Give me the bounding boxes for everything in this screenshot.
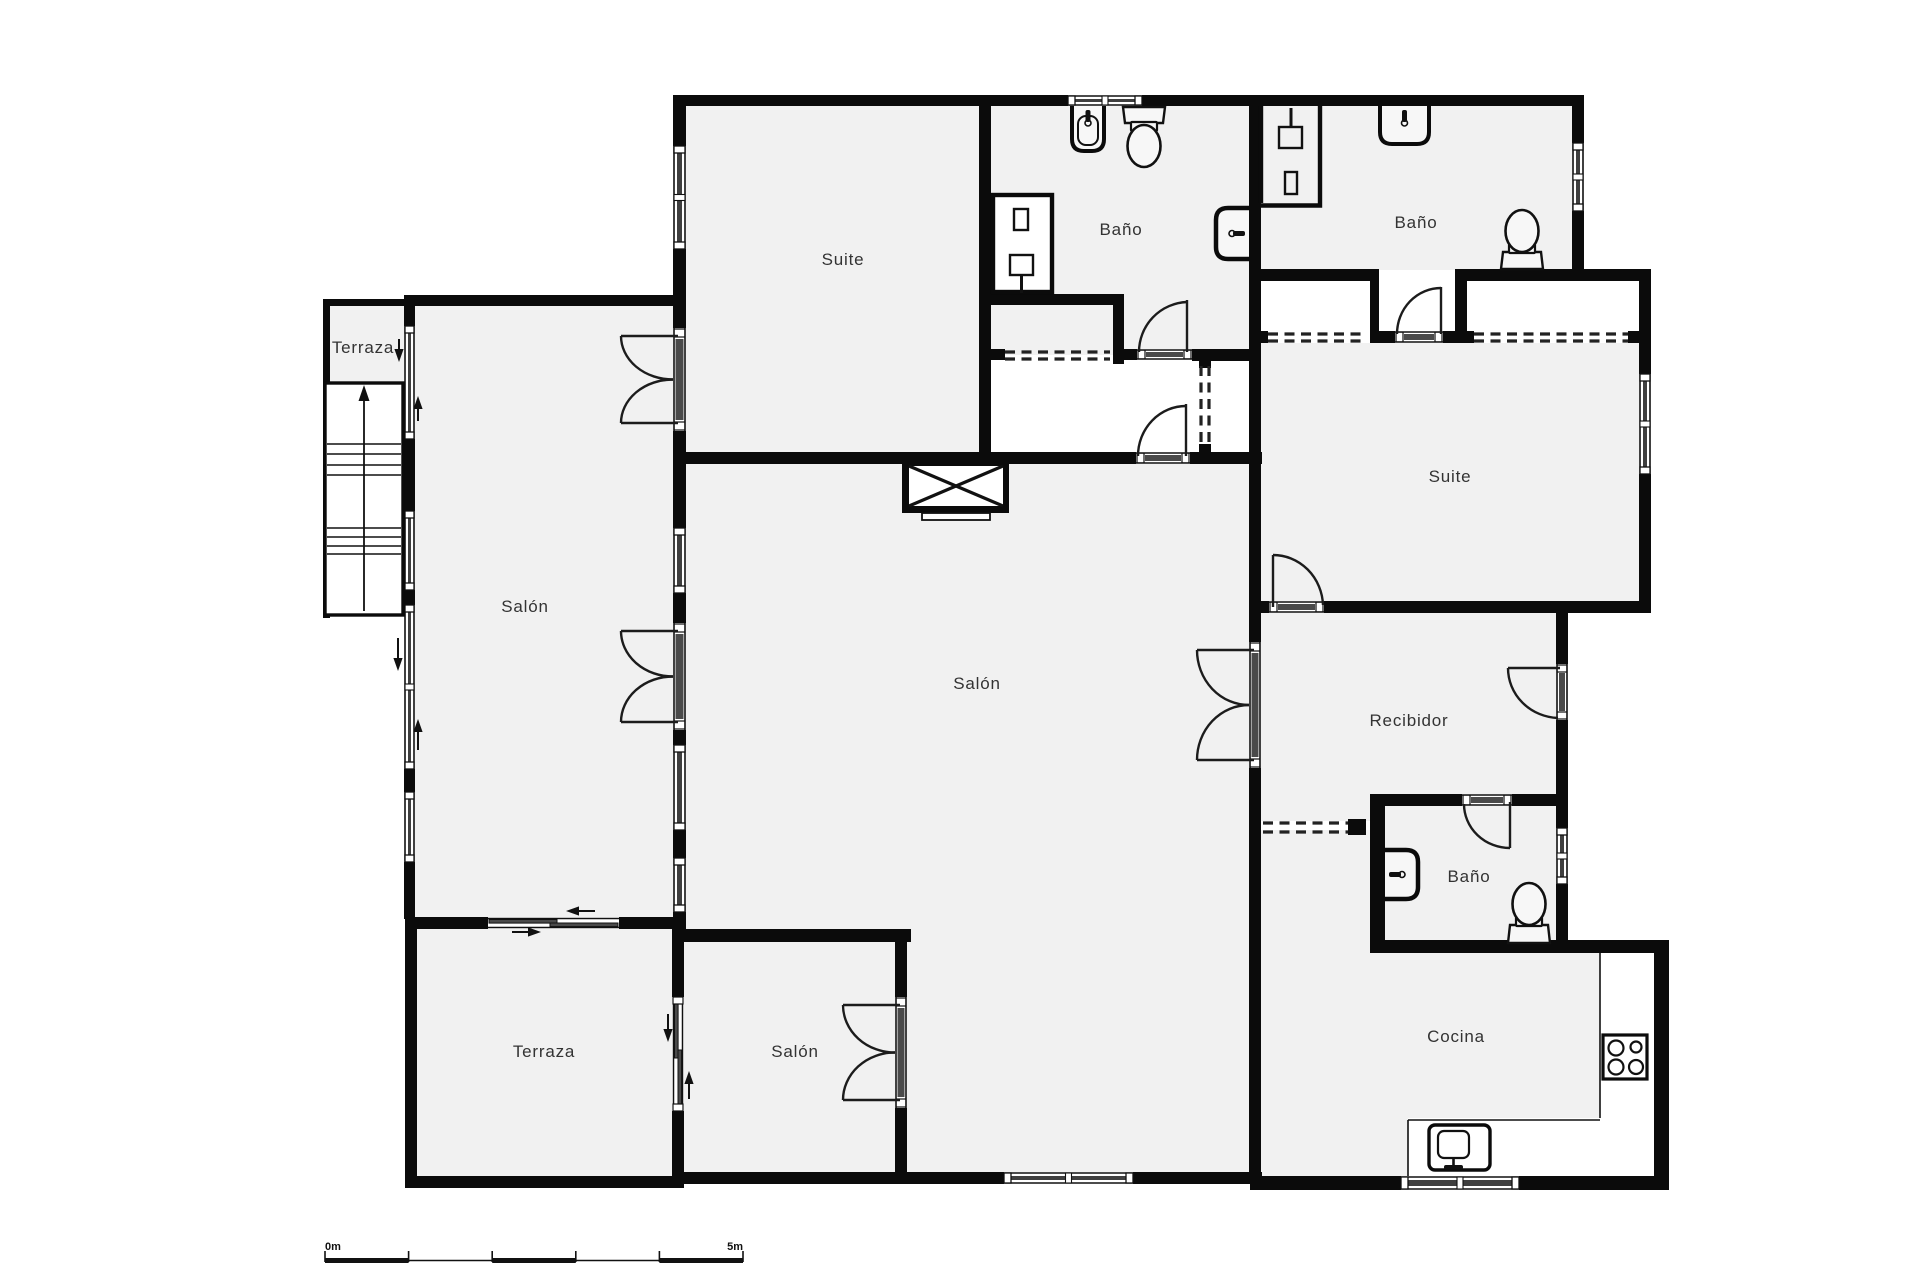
svg-text:Salón: Salón	[501, 597, 548, 616]
svg-text:Baño: Baño	[1100, 220, 1143, 239]
svg-text:Salón: Salón	[953, 674, 1000, 693]
svg-text:0m: 0m	[325, 1241, 341, 1253]
svg-text:Terraza: Terraza	[332, 338, 394, 357]
svg-text:Baño: Baño	[1448, 867, 1491, 886]
svg-text:Baño: Baño	[1395, 213, 1438, 232]
svg-text:Suite: Suite	[1429, 467, 1472, 486]
svg-text:Suite: Suite	[822, 250, 865, 269]
svg-text:5m: 5m	[727, 1241, 743, 1253]
svg-text:Salón: Salón	[771, 1042, 818, 1061]
svg-text:Recibidor: Recibidor	[1369, 711, 1448, 730]
svg-text:Terraza: Terraza	[513, 1042, 575, 1061]
svg-text:Cocina: Cocina	[1427, 1027, 1485, 1046]
